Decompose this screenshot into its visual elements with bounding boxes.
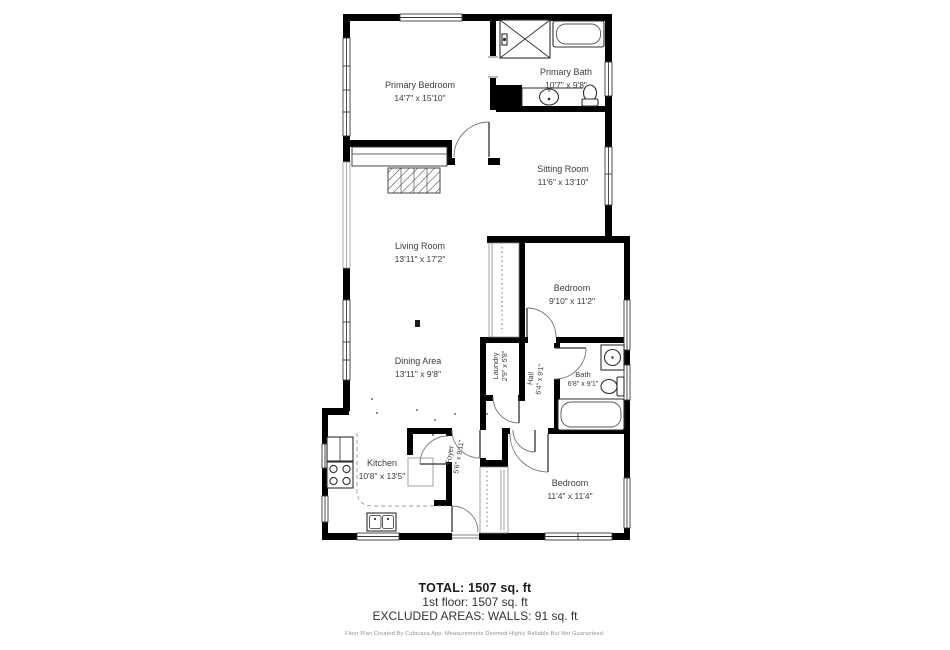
window — [343, 300, 350, 380]
room-dims: 2'9" x 5'8" — [501, 351, 511, 382]
room-name: Bedroom — [547, 477, 592, 490]
room-name: Kitchen — [359, 457, 406, 470]
window — [624, 300, 630, 350]
door — [452, 506, 478, 532]
bath-vanity-sink — [601, 345, 624, 370]
room-name: Sitting Room — [537, 163, 589, 176]
window — [343, 162, 350, 268]
bedroom-middle-closet — [489, 243, 519, 337]
bath-toilet — [601, 377, 624, 396]
primary-bathtub — [553, 21, 604, 47]
excluded-areas-text: EXCLUDED AREAS: WALLS: 91 sq. ft — [0, 610, 950, 623]
door — [527, 308, 556, 337]
door — [510, 434, 548, 472]
floor-plan: Primary Bedroom 14'7" x 15'10" Primary B… — [0, 0, 950, 650]
primary-bedroom-closet — [352, 147, 447, 166]
room-name: Bedroom — [549, 282, 595, 295]
window — [624, 478, 630, 528]
shower — [500, 20, 550, 58]
door — [454, 122, 489, 157]
window — [605, 62, 612, 96]
room-label-primary-bedroom: Primary Bedroom 14'7" x 15'10" — [385, 79, 455, 105]
area-summary: TOTAL: 1507 sq. ft 1st floor: 1507 sq. f… — [0, 581, 950, 637]
fireplace-hatch — [388, 168, 440, 193]
window — [605, 147, 612, 205]
room-name: Primary Bedroom — [385, 79, 455, 92]
room-dims: 10'7" x 9'8" — [540, 79, 592, 92]
window — [545, 533, 612, 540]
window — [400, 14, 462, 21]
room-label-kitchen: Kitchen 10'8" x 13'5" — [359, 457, 406, 483]
room-label-living-room: Living Room 13'11" x 17'2" — [395, 240, 446, 266]
total-area-text: TOTAL: 1507 sq. ft — [0, 581, 950, 595]
stove — [327, 462, 353, 488]
room-label-sitting-room: Sitting Room 11'6" x 13'10" — [537, 163, 589, 189]
room-label-laundry: Laundry 2'9" x 5'8" — [491, 351, 511, 382]
first-floor-area-text: 1st floor: 1507 sq. ft — [0, 596, 950, 609]
room-dims: 6'8" x 9'1" — [568, 380, 599, 390]
room-name: Dining Area — [395, 355, 442, 368]
room-name: Primary Bath — [540, 66, 592, 79]
room-dims: 11'6" x 13'10" — [537, 176, 589, 189]
room-name: Living Room — [395, 240, 446, 253]
room-name: Bath — [568, 370, 599, 380]
window — [357, 533, 399, 540]
room-label-dining-area: Dining Area 13'11" x 9'8" — [395, 355, 442, 381]
floor-plan-page: Primary Bedroom 14'7" x 15'10" Primary B… — [0, 0, 950, 650]
window — [322, 496, 328, 522]
disclaimer-text: Floor Plan Created By Cubicasa App. Meas… — [0, 631, 950, 637]
bathtub — [558, 399, 624, 430]
room-name: Laundry — [491, 351, 501, 382]
room-dims: 11'4" x 11'4" — [547, 490, 592, 503]
window — [624, 365, 630, 400]
bedroom-bottom-closet — [480, 467, 508, 533]
room-dims: 13'11" x 17'2" — [395, 253, 446, 266]
room-label-bedroom-bottom: Bedroom 11'4" x 11'4" — [547, 477, 592, 503]
refrigerator — [327, 437, 353, 461]
room-label-hall: Hall 6'4" x 9'1" — [524, 363, 547, 396]
room-dims: 10'8" x 13'5" — [359, 470, 406, 483]
room-dims: 9'10" x 11'2" — [549, 295, 595, 308]
room-dims: 14'7" x 15'10" — [385, 92, 455, 105]
room-dims: 13'11" x 9'8" — [395, 368, 442, 381]
room-label-bedroom-middle: Bedroom 9'10" x 11'2" — [549, 282, 595, 308]
floor-plan-drawing — [0, 0, 950, 650]
window — [343, 38, 350, 136]
room-label-primary-bath: Primary Bath 10'7" x 9'8" — [540, 66, 592, 92]
kitchen-sink — [367, 513, 396, 531]
room-label-bath: Bath 6'8" x 9'1" — [568, 370, 599, 390]
